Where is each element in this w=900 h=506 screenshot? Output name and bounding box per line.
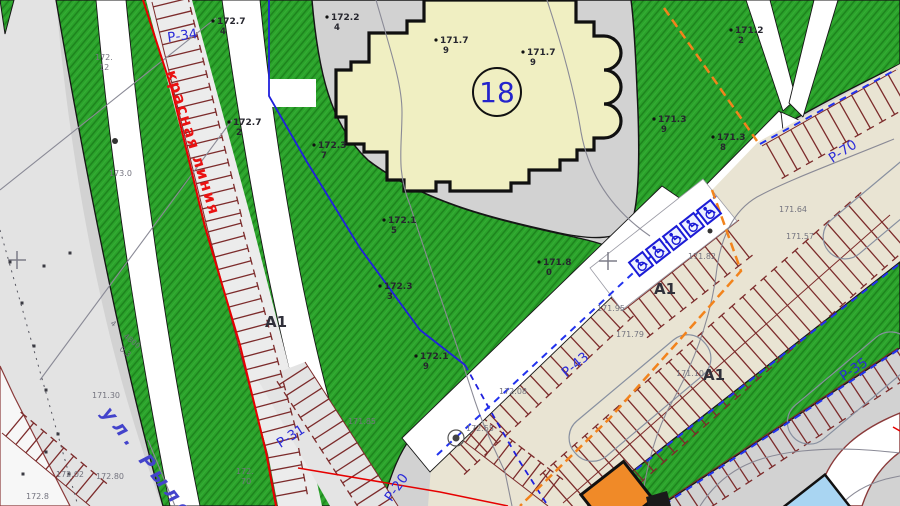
spot-height-label: 171.79 (616, 330, 644, 339)
elevation-dot (711, 135, 714, 138)
elevation-sub: 2 (236, 128, 242, 138)
survey-marker (9, 261, 12, 264)
survey-marker (33, 345, 36, 348)
elevation-sub: 5 (391, 226, 397, 236)
spot-height-label: 172. (95, 53, 113, 62)
spot-height-label: 171.64 (779, 205, 807, 214)
elevation-label: 171.2 (735, 26, 763, 36)
site-plan-map[interactable]: 18 172.24171.79171.79172.74172.72172.371… (0, 0, 900, 506)
area-label: A1 (654, 280, 676, 298)
elevation-label: 171.3 (658, 115, 686, 125)
spot-height-label: 172.8 (26, 492, 49, 501)
building-number: 18 (479, 76, 515, 109)
elevation-label: 172.1 (388, 216, 416, 226)
survey-marker (57, 433, 60, 436)
survey-point (708, 229, 713, 234)
spot-height-label: 173.0 (109, 169, 132, 178)
survey-marker (45, 451, 48, 454)
spot-height-label: 70 (241, 477, 251, 486)
spot-height-label: 171.82 (688, 252, 716, 261)
elevation-dot (652, 117, 655, 120)
elevation-label: 171.3 (717, 133, 745, 143)
survey-marker (21, 302, 24, 305)
survey-marker (22, 473, 25, 476)
elevation-dot (414, 354, 417, 357)
survey-point (112, 138, 118, 144)
spot-height-label: 172.08 (499, 387, 527, 396)
elevation-dot (537, 260, 540, 263)
elevation-dot (378, 284, 381, 287)
elevation-sub: 4 (334, 23, 340, 33)
survey-point (453, 435, 460, 442)
elevation-label: 171.7 (440, 36, 468, 46)
elevation-sub: 9 (530, 58, 536, 68)
elevation-dot (227, 120, 230, 123)
elevation-label: 172.2 (331, 13, 359, 23)
elevation-sub: 8 (720, 143, 726, 153)
elevation-label: 172.7 (217, 17, 245, 27)
elevation-label: 172.1 (420, 352, 448, 362)
area-label: A1 (265, 313, 287, 331)
elevation-dot (521, 50, 524, 53)
elevation-sub: 3 (387, 292, 393, 302)
map-viewport: 18 172.24171.79171.79172.74172.72172.371… (0, 0, 900, 506)
spot-height-label: 12 (99, 63, 109, 72)
elevation-label: 172.3 (318, 141, 346, 151)
spot-height-label: 172. (236, 467, 254, 476)
spot-height-label: 171.30 (92, 391, 120, 400)
elevation-sub: 9 (661, 125, 667, 135)
elevation-dot (382, 218, 385, 221)
elevation-dot (312, 143, 315, 146)
elevation-sub: 9 (423, 362, 429, 372)
spot-height-label: 171.95 (597, 304, 625, 313)
spot-height-label: 171.57 (786, 232, 814, 241)
elevation-label: 171.7 (527, 48, 555, 58)
elevation-label: 172.7 (233, 118, 261, 128)
survey-marker (69, 252, 72, 255)
elevation-sub: 4 (220, 27, 226, 37)
area-label: A1 (703, 366, 725, 384)
elevation-dot (325, 15, 328, 18)
spot-height-label: 172.55 (466, 424, 494, 433)
spot-height-label: 171.85 (348, 417, 376, 426)
survey-marker (45, 389, 48, 392)
survey-marker (43, 265, 46, 268)
spot-height-label: 171.10 (676, 369, 704, 378)
elevation-label: 172.3 (384, 282, 412, 292)
elevation-label: 171.8 (543, 258, 571, 268)
path-notch (252, 79, 316, 107)
elevation-sub: 2 (738, 36, 744, 46)
elevation-sub: 0 (546, 268, 552, 278)
spot-height-label: 172.02 (56, 470, 84, 479)
elevation-dot (434, 38, 437, 41)
elevation-sub: 9 (443, 46, 449, 56)
elevation-dot (211, 19, 214, 22)
spot-height-label: 172.80 (96, 472, 124, 481)
elevation-sub: 7 (321, 151, 327, 161)
elevation-dot (729, 28, 732, 31)
